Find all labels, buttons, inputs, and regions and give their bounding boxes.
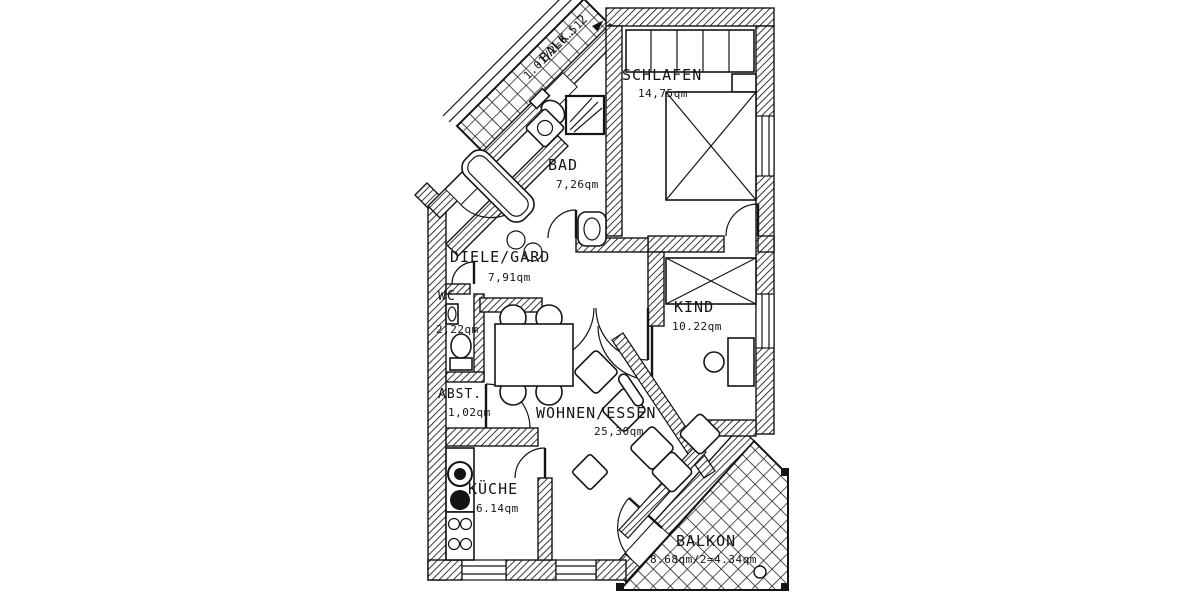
svg-text:6.14qm: 6.14qm — [476, 502, 519, 515]
wall-schlafen-kind — [648, 236, 724, 252]
kind-desk — [728, 338, 754, 386]
railing-post — [781, 468, 789, 476]
svg-text:8.68qm/2=4.34qm: 8.68qm/2=4.34qm — [650, 553, 757, 566]
svg-text:BAD: BAD — [548, 156, 578, 174]
paper-background — [0, 0, 1200, 600]
window-right-schlafen — [756, 116, 774, 176]
wall-bad-schlafen — [606, 26, 622, 236]
dining-table — [495, 324, 573, 386]
railing-post — [781, 583, 789, 591]
wall-kueche-top — [446, 428, 538, 446]
svg-text:25,30qm: 25,30qm — [594, 425, 644, 438]
wc-toilet — [450, 334, 472, 370]
svg-text:10.22qm: 10.22qm — [672, 320, 722, 333]
svg-text:7,91qm: 7,91qm — [488, 271, 531, 284]
wall-schlafen-kind — [758, 236, 774, 252]
wall-kind-left — [648, 252, 664, 326]
balcony-drain — [754, 566, 766, 578]
wc-sink — [446, 304, 458, 324]
wall-bottom — [596, 560, 626, 580]
wall-kueche-right — [538, 478, 552, 560]
svg-text:DIELE/GARD: DIELE/GARD — [450, 248, 550, 266]
svg-text:KÜCHE: KÜCHE — [468, 479, 518, 498]
schlafen-bed — [666, 92, 756, 200]
svg-text:BALKON: BALKON — [676, 532, 736, 550]
wall-top — [606, 8, 774, 26]
wall-bottom — [506, 560, 556, 580]
wall-bottom — [428, 560, 462, 580]
svg-text:ABST.: ABST. — [438, 387, 482, 402]
svg-text:14,75qm: 14,75qm — [638, 87, 688, 100]
railing-post — [616, 583, 624, 591]
window-bottom-kueche — [462, 560, 506, 580]
svg-text:7,26qm: 7,26qm — [556, 178, 599, 191]
schlafen-nightstand — [732, 74, 756, 92]
floor-plan-drawing: BALK. 2 1.01/2=0.51 SCHLAFEN 14,75qm BAD… — [0, 0, 1200, 600]
svg-text:WOHNEN/ESSEN: WOHNEN/ESSEN — [536, 404, 656, 422]
kind-chair — [704, 352, 724, 372]
room-label-kueche: KÜCHE 6.14qm — [468, 479, 519, 515]
svg-text:KIND: KIND — [674, 298, 714, 316]
wall-wc-abst — [446, 372, 484, 382]
svg-text:1,02qm: 1,02qm — [448, 406, 491, 419]
bad-sink — [578, 212, 606, 246]
shower — [566, 96, 604, 134]
svg-text:2,22qm: 2,22qm — [436, 323, 479, 336]
floor-plan-page: BALK. 2 1.01/2=0.51 SCHLAFEN 14,75qm BAD… — [0, 0, 1200, 600]
kitchen-stove — [446, 512, 474, 560]
window-bottom-wohnen — [556, 560, 596, 580]
svg-text:WC: WC — [438, 289, 456, 304]
svg-text:SCHLAFEN: SCHLAFEN — [622, 66, 702, 84]
window-right-kind — [756, 294, 774, 348]
